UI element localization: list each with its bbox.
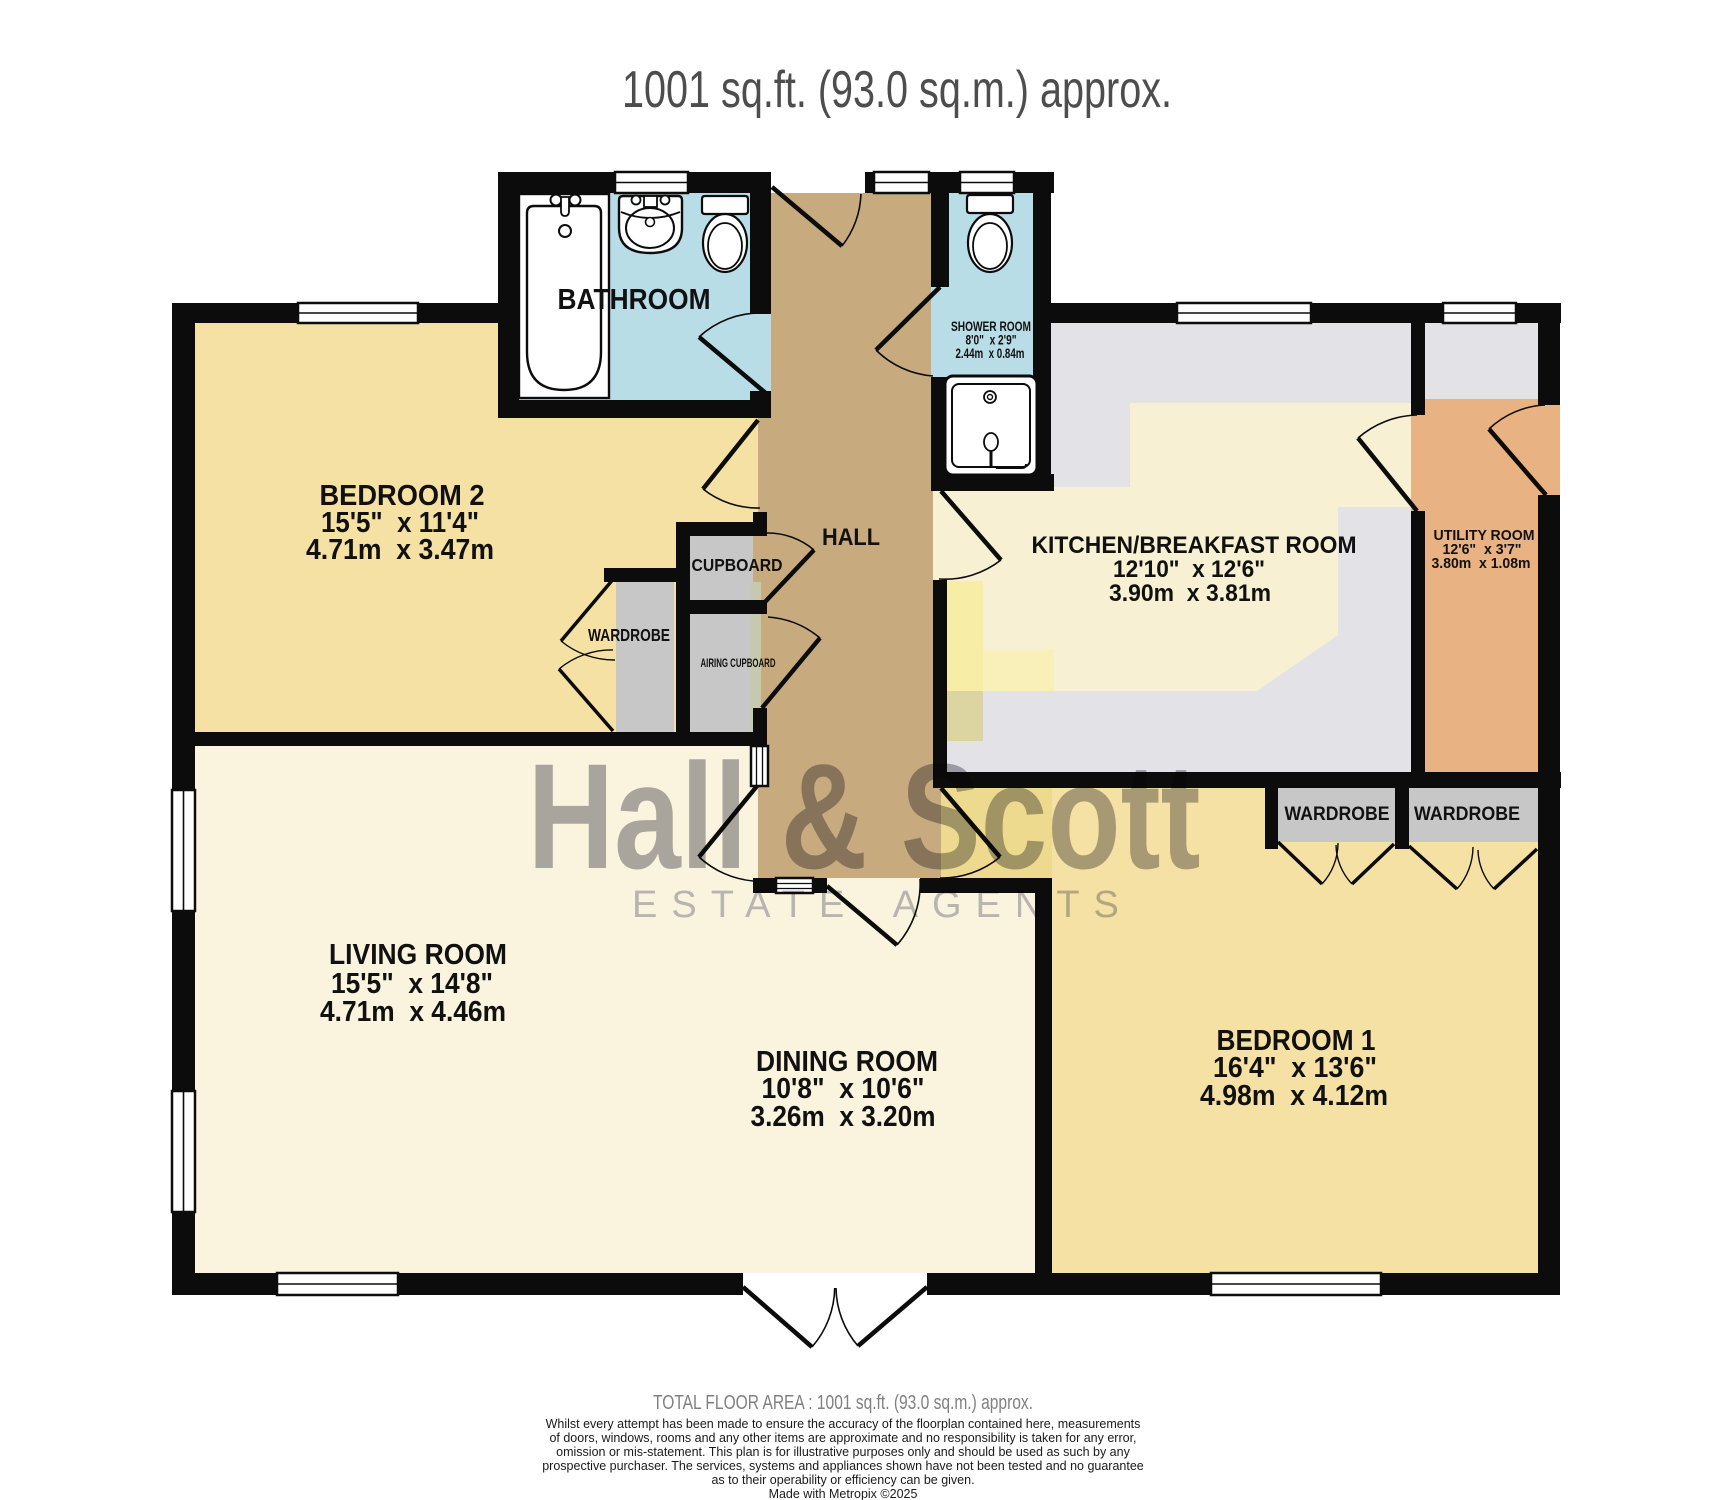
svg-text:HALL: HALL [822,524,880,551]
svg-text:prospective purchaser. The ser: prospective purchaser. The services, sys… [542,1459,1144,1473]
svg-text:2.44m x 0.84m: 2.44m x 0.84m [956,346,1025,361]
svg-text:12'10" x 12'6": 12'10" x 12'6" [1113,556,1265,583]
svg-text:4.98m x 4.12m: 4.98m x 4.12m [1200,1080,1388,1112]
svg-text:as to their operability or eff: as to their operability or efficiency ca… [711,1473,974,1487]
svg-text:3.90m x 3.81m: 3.90m x 3.81m [1109,580,1271,607]
svg-text:4.71m x 3.47m: 4.71m x 3.47m [306,534,494,566]
svg-text:WARDROBE: WARDROBE [1285,804,1390,825]
svg-text:AIRING CUPBOARD: AIRING CUPBOARD [701,656,776,670]
svg-text:KITCHEN/BREAKFAST ROOM: KITCHEN/BREAKFAST ROOM [1032,532,1357,559]
svg-text:LIVING ROOM: LIVING ROOM [329,939,507,971]
svg-text:CUPBOARD: CUPBOARD [692,555,783,575]
svg-text:3.26m x 3.20m: 3.26m x 3.20m [751,1101,936,1133]
svg-text:of doors, windows, rooms and a: of doors, windows, rooms and any other i… [549,1431,1136,1445]
svg-text:BATHROOM: BATHROOM [558,284,711,316]
svg-text:WARDROBE: WARDROBE [588,625,670,645]
svg-text:1001 sq.ft. (93.0 sq.m.) appro: 1001 sq.ft. (93.0 sq.m.) approx. [622,61,1172,119]
svg-text:Whilst every attempt has been: Whilst every attempt has been made to en… [546,1417,1141,1431]
svg-text:WARDROBE: WARDROBE [1414,804,1520,825]
svg-text:TOTAL FLOOR AREA : 1001 sq.ft.: TOTAL FLOOR AREA : 1001 sq.ft. (93.0 sq.… [653,1391,1033,1414]
svg-text:4.71m x 4.46m: 4.71m x 4.46m [320,996,506,1028]
svg-text:omission or mis-statement. Thi: omission or mis-statement. This plan is … [556,1445,1130,1459]
svg-text:Made with Metropix ©2025: Made with Metropix ©2025 [769,1487,918,1500]
svg-text:3.80m x 1.08m: 3.80m x 1.08m [1432,555,1531,572]
svg-text:ESTATE AGENTS: ESTATE AGENTS [632,884,1133,926]
svg-text:Hall & Scott: Hall & Scott [528,732,1201,900]
